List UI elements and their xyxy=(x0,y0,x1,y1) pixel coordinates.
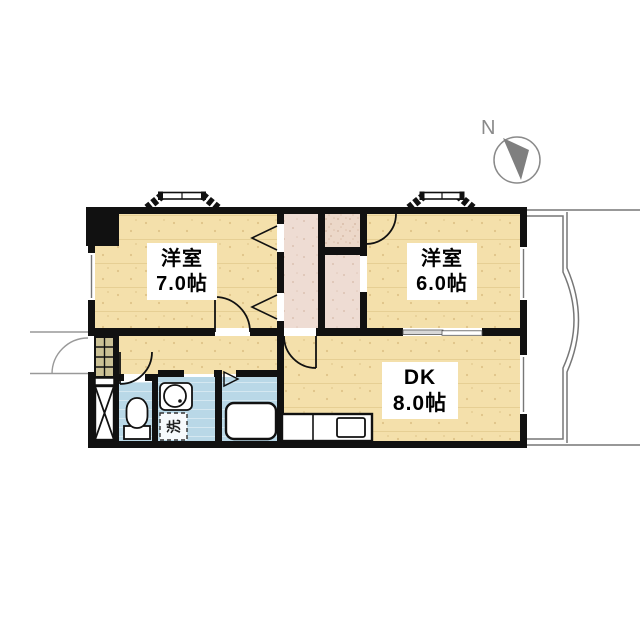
room-label-west6: 洋室 6.0帖 xyxy=(407,243,477,300)
entrance-door-swing-outside xyxy=(52,338,88,374)
room-size: 7.0帖 xyxy=(156,272,208,296)
sliding-door-room6-dk xyxy=(403,329,482,337)
closet-left xyxy=(284,214,318,328)
room-name: 洋室 xyxy=(421,247,463,271)
compass xyxy=(494,137,540,183)
floor-plan: N 洋室 7.0帖 洋室 6.0帖 DK 8.0帖 洗 xyxy=(0,0,640,640)
washing-machine-label: 洗 xyxy=(160,413,187,440)
bay-window-left xyxy=(147,192,218,209)
room-size: 6.0帖 xyxy=(416,272,468,296)
room-name: DK xyxy=(404,365,436,391)
bay-window-right xyxy=(409,192,473,209)
compass-label: N xyxy=(481,117,495,140)
closet-lower-right xyxy=(325,255,360,328)
toilet xyxy=(124,398,150,439)
closet-upper-right xyxy=(325,214,360,247)
room-size: 8.0帖 xyxy=(393,391,447,417)
kitchen-counter xyxy=(282,414,372,441)
kitchen-sink xyxy=(337,418,365,437)
corner-pillar xyxy=(86,207,119,246)
shoe-cabinet xyxy=(95,337,114,377)
balcony xyxy=(527,210,640,445)
balcony-rail-outer xyxy=(567,212,579,443)
entrance-porch-lines xyxy=(30,332,88,374)
void-box xyxy=(95,386,114,440)
entrance-shelf xyxy=(95,378,114,385)
room-label-west7: 洋室 7.0帖 xyxy=(147,243,217,300)
hallway-floor xyxy=(119,336,282,374)
washbasin xyxy=(160,383,192,410)
room-label-dk: DK 8.0帖 xyxy=(382,362,458,419)
room-name: 洋室 xyxy=(161,247,203,271)
floor-plan-drawing xyxy=(0,0,640,640)
compass-needle xyxy=(503,138,529,180)
bathtub xyxy=(226,403,276,439)
